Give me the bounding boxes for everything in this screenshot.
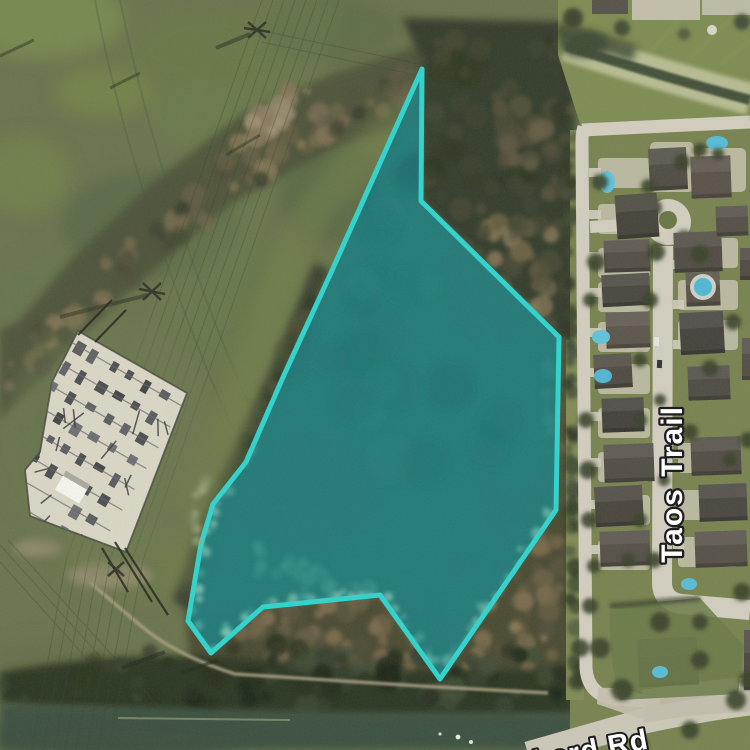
- svg-text:Taos Trail: Taos Trail: [656, 405, 689, 563]
